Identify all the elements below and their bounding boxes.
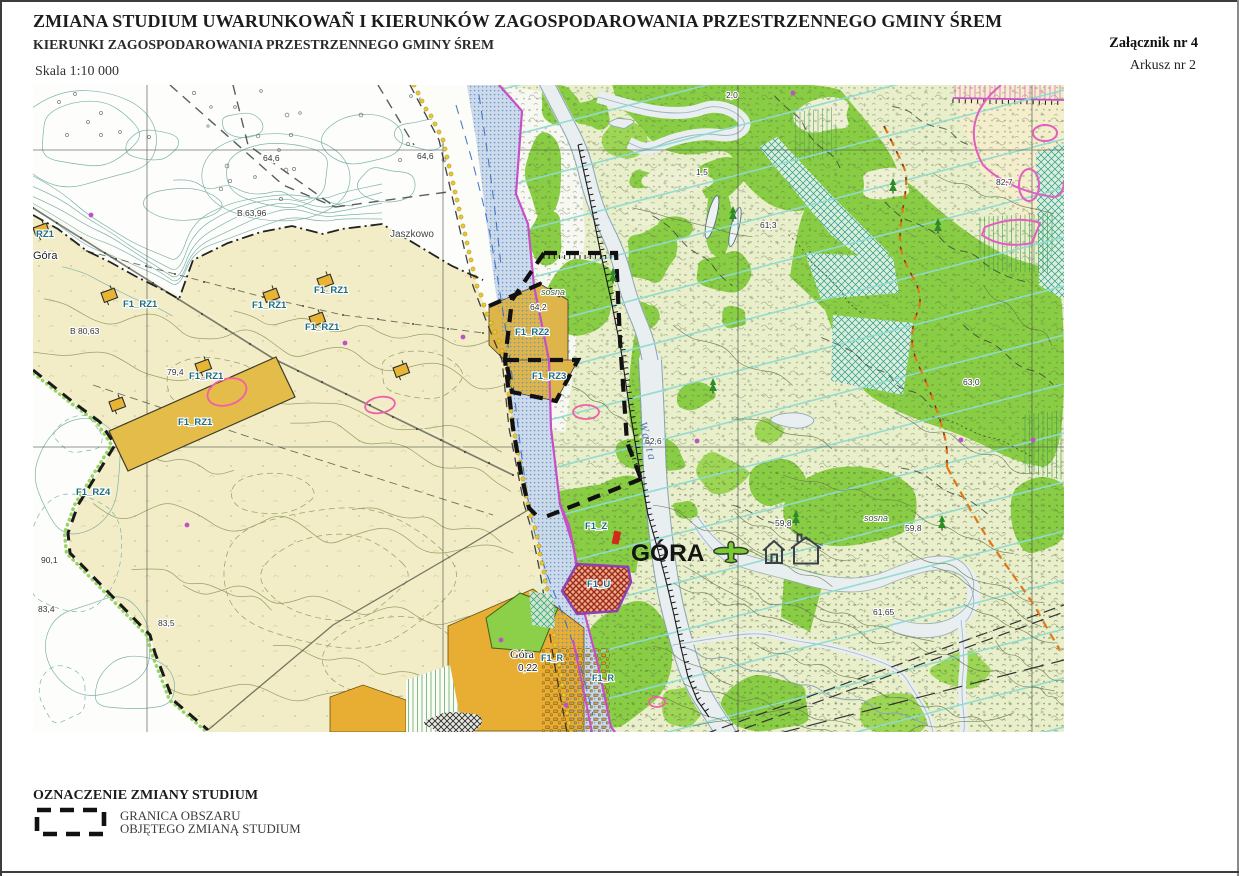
svg-text:F1_RZ1: F1_RZ1: [123, 299, 158, 310]
svg-text:B 80,63: B 80,63: [70, 326, 100, 336]
svg-text:F1_RZ1: F1_RZ1: [314, 285, 349, 296]
svg-text:F1_RZ3: F1_RZ3: [532, 371, 566, 382]
svg-text:F1_RZ4: F1_RZ4: [76, 487, 111, 498]
svg-text:61,65: 61,65: [873, 607, 895, 617]
svg-text:1,5: 1,5: [696, 167, 708, 177]
svg-text:59,8: 59,8: [905, 523, 922, 533]
svg-text:63,0: 63,0: [963, 377, 980, 387]
svg-text:2,0: 2,0: [726, 90, 738, 100]
svg-text:F1_U: F1_U: [587, 579, 610, 590]
svg-text:F1_RZ1: F1_RZ1: [305, 322, 340, 333]
svg-text:Góra: Góra: [510, 647, 535, 661]
svg-text:0,22: 0,22: [518, 663, 538, 674]
svg-text:B 63,96: B 63,96: [237, 208, 267, 218]
svg-text:59,8: 59,8: [775, 518, 792, 528]
svg-text:64,2: 64,2: [530, 302, 547, 312]
svg-text:82,7: 82,7: [996, 177, 1013, 187]
svg-text:83,5: 83,5: [158, 618, 175, 628]
svg-text:sosna: sosna: [864, 513, 888, 523]
svg-text:64,6: 64,6: [417, 151, 434, 161]
svg-text:F1_R: F1_R: [541, 653, 564, 663]
svg-text:F1_RZ1: F1_RZ1: [252, 300, 287, 311]
svg-text:61,3: 61,3: [760, 220, 777, 230]
svg-text:F1_RZ1: F1_RZ1: [189, 371, 224, 382]
svg-text:F1_RZ1: F1_RZ1: [178, 417, 213, 428]
svg-text:64,6: 64,6: [263, 153, 280, 163]
svg-text:F1_Z: F1_Z: [585, 521, 607, 532]
svg-text:F1_RZ2: F1_RZ2: [515, 327, 549, 338]
svg-text:sosna: sosna: [541, 287, 565, 297]
svg-text:Góra: Góra: [33, 250, 58, 262]
svg-text:GÓRA: GÓRA: [631, 539, 705, 567]
svg-text:79,4: 79,4: [167, 367, 184, 377]
svg-text:RZ1: RZ1: [36, 229, 55, 240]
svg-text:Jaszkowo: Jaszkowo: [390, 229, 434, 240]
svg-text:F1_R: F1_R: [592, 673, 615, 683]
svg-text:90,1: 90,1: [41, 555, 58, 565]
svg-text:83,4: 83,4: [38, 604, 55, 614]
